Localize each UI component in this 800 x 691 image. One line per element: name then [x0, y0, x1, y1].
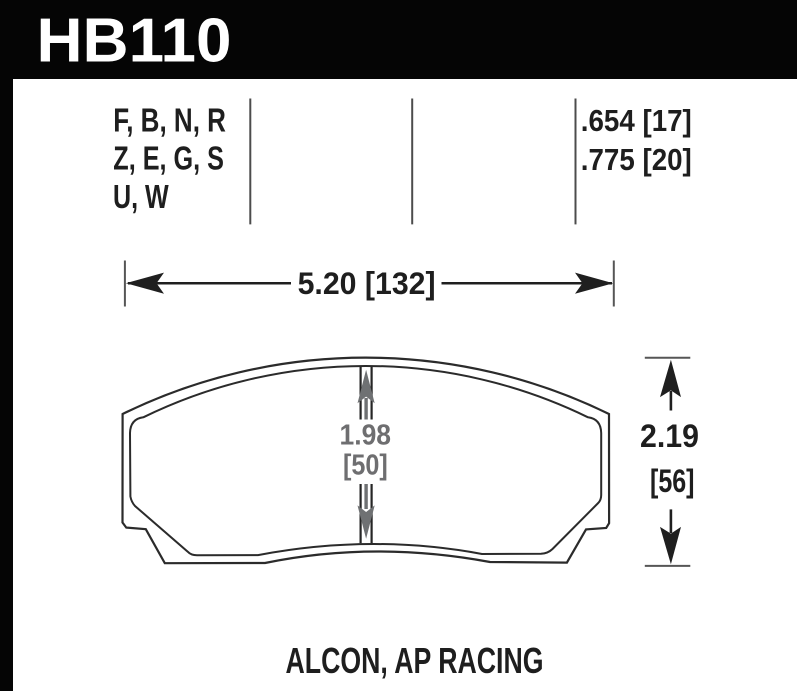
- svg-text:[56]: [56]: [650, 463, 695, 499]
- svg-text:Z, E, G, S: Z, E, G, S: [113, 140, 224, 177]
- svg-text:2.19: 2.19: [640, 417, 699, 454]
- svg-text:[50]: [50]: [343, 449, 388, 481]
- svg-text:HB110: HB110: [37, 6, 232, 75]
- svg-text:U, W: U, W: [113, 178, 169, 215]
- svg-text:F, B, N, R: F, B, N, R: [113, 102, 226, 139]
- svg-text:1.98: 1.98: [340, 420, 392, 452]
- svg-text:.775 [20]: .775 [20]: [581, 142, 692, 177]
- svg-text:ALCON, AP RACING: ALCON, AP RACING: [286, 641, 544, 681]
- svg-text:5.20 [132]: 5.20 [132]: [298, 266, 436, 301]
- svg-text:.654 [17]: .654 [17]: [581, 103, 692, 138]
